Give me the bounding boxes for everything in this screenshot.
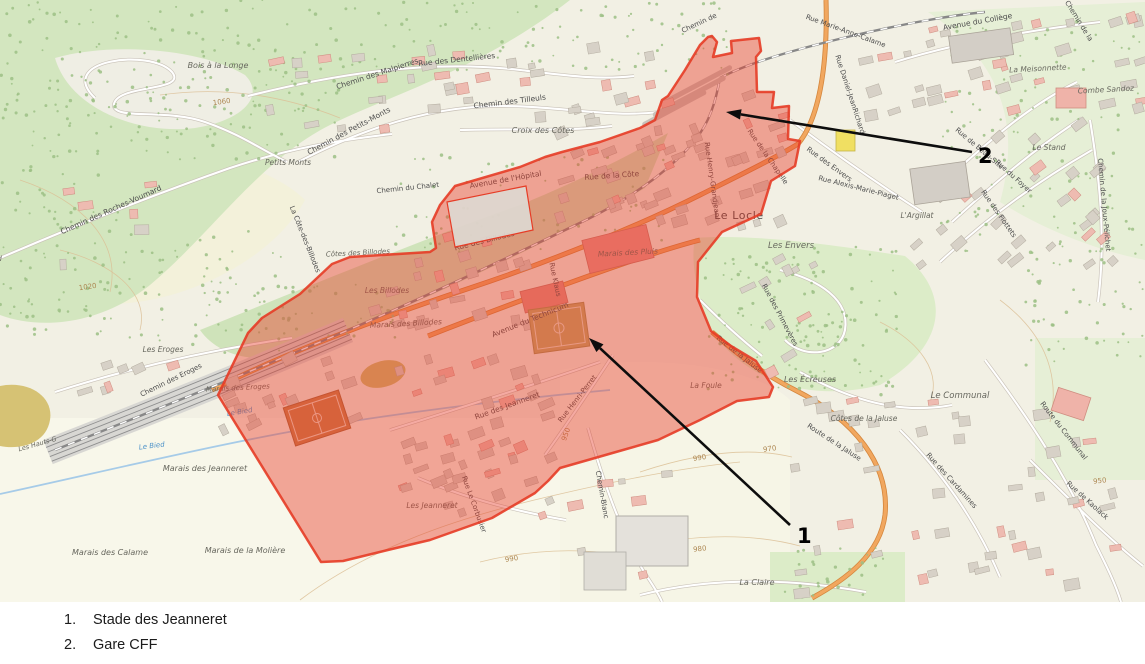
legend-item: 1.Stade des Jeanneret — [64, 612, 1145, 637]
town-map: Bois à la LongeChemin des MalpierresRue … — [0, 0, 1145, 602]
map-label: Le Stand — [1033, 143, 1066, 152]
map-label: Les Eroges — [143, 345, 184, 354]
legend: 1.Stade des Jeanneret2.Gare CFF — [0, 602, 1145, 662]
map-label: La Claire — [739, 578, 774, 587]
marker-number-1: 1 — [797, 524, 812, 548]
map-label: Marais des Calame — [72, 548, 148, 557]
map-label: 980 — [693, 544, 707, 553]
legend-item-number: 2. — [64, 637, 93, 653]
map-label: Croix des Côtes — [512, 125, 575, 135]
warehouse-building-2 — [584, 552, 626, 590]
map-label: Marais des Jeanneret — [163, 464, 248, 473]
green-south — [770, 552, 905, 602]
le-stand-building — [910, 161, 970, 204]
map-label: Les Envers — [768, 241, 815, 251]
map-label: Bois à la Longe — [188, 61, 249, 70]
map-label: Les Écreuses — [784, 373, 836, 384]
warehouse-building — [616, 516, 688, 566]
legend-item-number: 1. — [64, 612, 93, 628]
map-label: Petits Monts — [265, 158, 311, 167]
map-label: Côtes de la Jaluse — [831, 414, 898, 423]
legend-item-label: Gare CFF — [93, 637, 157, 653]
map-label: Marais de la Molière — [205, 545, 286, 555]
legend-item: 2.Gare CFF — [64, 637, 1145, 662]
marker-number-2: 2 — [978, 144, 993, 168]
legend-item-label: Stade des Jeanneret — [93, 612, 227, 628]
map-label: 950 — [1093, 476, 1107, 485]
map-label: L'Argillat — [900, 211, 934, 220]
map-canvas: Bois à la LongeChemin des MalpierresRue … — [0, 0, 1145, 602]
map-label: Le Communal — [931, 391, 990, 401]
